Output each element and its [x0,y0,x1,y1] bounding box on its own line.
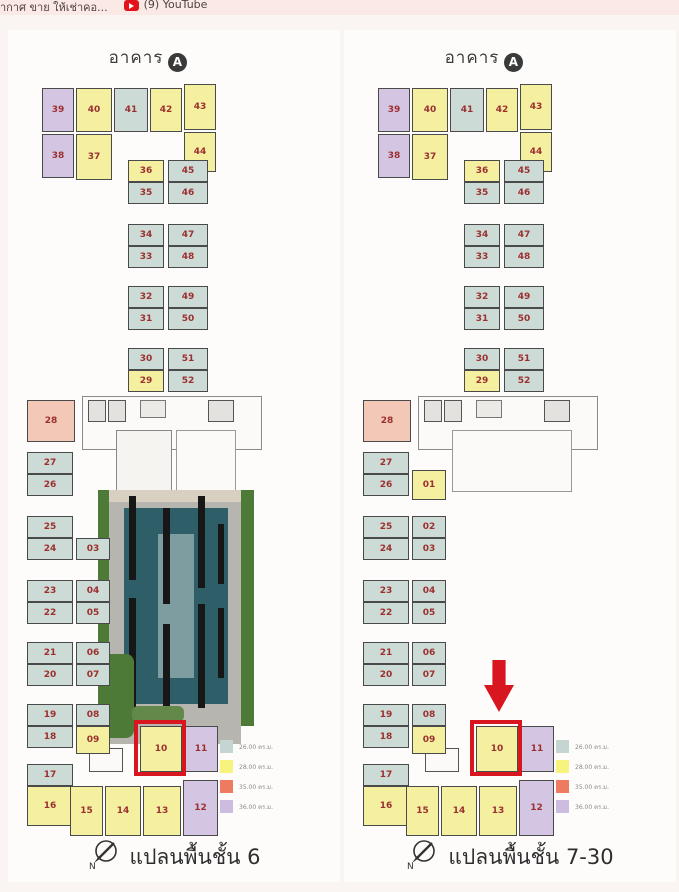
unit-07: 07 [76,664,110,686]
unit-29: 29 [464,370,500,392]
unit-42: 42 [486,88,518,132]
elevator [444,400,462,422]
legend-item: 35.00 ตร.ม. [556,780,609,793]
browser-tab-youtube[interactable]: (9) YouTube [124,0,208,11]
youtube-tab-label: (9) YouTube [144,0,208,11]
unit-21: 21 [27,642,73,664]
unit-15: 15 [70,786,103,836]
unit-32: 32 [464,286,500,308]
unit-16: 16 [27,786,73,826]
unit-40: 40 [412,88,448,132]
unit-12: 12 [183,780,218,836]
unit-42: 42 [150,88,182,132]
unit-17: 17 [27,764,73,786]
legend-item: 36.00 ตร.ม. [556,800,609,813]
legend-label: 26.00 ตร.ม. [575,742,609,752]
legend-color-swatch [556,800,569,813]
unit-20: 20 [27,664,73,686]
browser-tab-strip: ากาศ ขาย ให้เช่าคอ... (9) YouTube [0,0,679,15]
legend-label: 36.00 ตร.ม. [239,802,273,812]
unit-23: 23 [363,580,409,602]
unit-48: 48 [504,246,544,268]
unit-22: 22 [363,602,409,624]
unit-20: 20 [363,664,409,686]
compass-icon: N [88,838,122,870]
unit-31: 31 [128,308,164,330]
unit-18: 18 [27,726,73,748]
unit-28: 28 [27,400,75,442]
unit-46: 46 [168,182,208,204]
unit-12: 12 [519,780,554,836]
unit-08: 08 [412,704,446,726]
unit-23: 23 [27,580,73,602]
unit-08: 08 [76,704,110,726]
highlight-box-unit-10 [470,720,522,776]
unit-03: 03 [412,538,446,560]
elevator [544,400,570,422]
unit-26: 26 [27,474,73,496]
stairs [476,400,502,418]
unit-52: 52 [168,370,208,392]
unit-35: 35 [464,182,500,204]
unit-14: 14 [441,786,477,836]
unit-13: 13 [479,786,517,836]
unit-15: 15 [406,786,439,836]
unit-13: 13 [143,786,181,836]
unit-49: 49 [504,286,544,308]
unit-32: 32 [128,286,164,308]
unit-21: 21 [363,642,409,664]
svg-text:N: N [407,862,414,870]
column [218,608,224,678]
floorplan-7-30-caption: N แปลนพื้นชั้น 7-30 [344,838,676,874]
legend-color-swatch [556,760,569,773]
unit-34: 34 [464,224,500,246]
legend-label: 28.00 ตร.ม. [239,762,273,772]
legend-color-swatch [556,740,569,753]
unit-40: 40 [76,88,112,132]
unit-38: 38 [42,134,74,178]
unit-05: 05 [412,602,446,624]
elevator [108,400,126,422]
unit-22: 22 [27,602,73,624]
unit-30: 30 [128,348,164,370]
stairs [140,400,166,418]
unit-45: 45 [168,160,208,182]
unit-33: 33 [128,246,164,268]
unit-39: 39 [378,88,410,132]
unit-06: 06 [76,642,110,664]
unit-37: 37 [76,134,112,180]
caption-text: แปลนพื้นชั้น 6 [130,845,261,869]
unit-30: 30 [464,348,500,370]
unit-06: 06 [412,642,446,664]
column [198,604,205,708]
fitness-room [116,430,172,492]
unit-05: 05 [76,602,110,624]
unit-27: 27 [27,452,73,474]
legend-label: 28.00 ตร.ม. [575,762,609,772]
unit-03: 03 [76,538,110,560]
unit-45: 45 [504,160,544,182]
unit-09: 09 [76,726,110,754]
unit-49: 49 [168,286,208,308]
unit-11: 11 [520,726,554,772]
unit-43: 43 [184,84,216,130]
legend-item: 26.00 ตร.ม. [556,740,609,753]
unit-11: 11 [184,726,218,772]
corridor-room [452,430,572,492]
column [129,496,136,580]
unit-50: 50 [168,308,208,330]
unit-39: 39 [42,88,74,132]
legend-label: 26.00 ตร.ม. [239,742,273,752]
unit-26: 26 [363,474,409,496]
legend-color-swatch [220,800,233,813]
unit-51: 51 [168,348,208,370]
unit-28: 28 [363,400,411,442]
unit-41: 41 [114,88,148,132]
unit-14: 14 [105,786,141,836]
unit-36: 36 [464,160,500,182]
browser-tab-title[interactable]: ากาศ ขาย ให้เช่าคอ... [0,0,108,15]
legend-color-swatch [220,740,233,753]
svg-text:N: N [89,862,96,870]
floorplan-6-caption: N แปลนพื้นชั้น 6 [8,838,340,874]
column [163,508,170,604]
lobby-room [176,430,236,492]
legend-item: 28.00 ตร.ม. [556,760,609,773]
legend-item: 35.00 ตร.ม. [220,780,273,793]
unit-38: 38 [378,134,410,178]
unit-29: 29 [128,370,164,392]
youtube-play-icon [124,0,139,11]
unit-25: 25 [363,516,409,538]
legend-color-swatch [556,780,569,793]
unit-25: 25 [27,516,73,538]
unit-37: 37 [412,134,448,180]
floorplan-sheet-6: อาคารA 394041424338374436453546344733483… [8,30,340,882]
unit-16: 16 [363,786,409,826]
legend-item: 28.00 ตร.ม. [220,760,273,773]
garden-strip [241,490,254,726]
elevator [208,400,234,422]
unit-17: 17 [363,764,409,786]
unit-47: 47 [504,224,544,246]
unit-36: 36 [128,160,164,182]
unit-33: 33 [464,246,500,268]
unit-46: 46 [504,182,544,204]
unit-02: 02 [412,516,446,538]
legend-color-swatch [220,760,233,773]
unit-04: 04 [76,580,110,602]
floorplan-sheet-7-30: อาคารA 394041424338374436453546344733483… [344,30,676,882]
column [198,496,205,588]
legend-color-swatch [220,780,233,793]
unit-34: 34 [128,224,164,246]
floor-plan-6: 3940414243383744364535463447334832493150… [12,38,337,818]
legend-label: 36.00 ตร.ม. [575,802,609,812]
legend-label: 35.00 ตร.ม. [575,782,609,792]
compass-icon: N [406,838,440,870]
unit-52: 52 [504,370,544,392]
unit-41: 41 [450,88,484,132]
unit-19: 19 [27,704,73,726]
elevator [88,400,106,422]
unit-47: 47 [168,224,208,246]
unit-04: 04 [412,580,446,602]
caption-text: แปลนพื้นชั้น 7-30 [448,845,613,869]
unit-43: 43 [520,84,552,130]
column [218,524,224,584]
unit-27: 27 [363,452,409,474]
unit-48: 48 [168,246,208,268]
unit-size-legend: 26.00 ตร.ม.28.00 ตร.ม.35.00 ตร.ม.36.00 ต… [556,740,609,820]
unit-07: 07 [412,664,446,686]
legend-item: 36.00 ตร.ม. [220,800,273,813]
unit-24: 24 [363,538,409,560]
unit-35: 35 [128,182,164,204]
unit-01: 01 [412,470,446,500]
unit-size-legend: 26.00 ตร.ม.28.00 ตร.ม.35.00 ตร.ม.36.00 ต… [220,740,273,820]
unit-31: 31 [464,308,500,330]
unit-18: 18 [363,726,409,748]
elevator [424,400,442,422]
unit-24: 24 [27,538,73,560]
arrow-down-icon [484,660,514,712]
legend-item: 26.00 ตร.ม. [220,740,273,753]
unit-09: 09 [412,726,446,754]
highlight-box-unit-10 [134,720,186,776]
legend-label: 35.00 ตร.ม. [239,782,273,792]
floor-plan-7-30: 3940414243383744364535463447334832493150… [348,38,673,818]
unit-51: 51 [504,348,544,370]
unit-19: 19 [363,704,409,726]
unit-50: 50 [504,308,544,330]
